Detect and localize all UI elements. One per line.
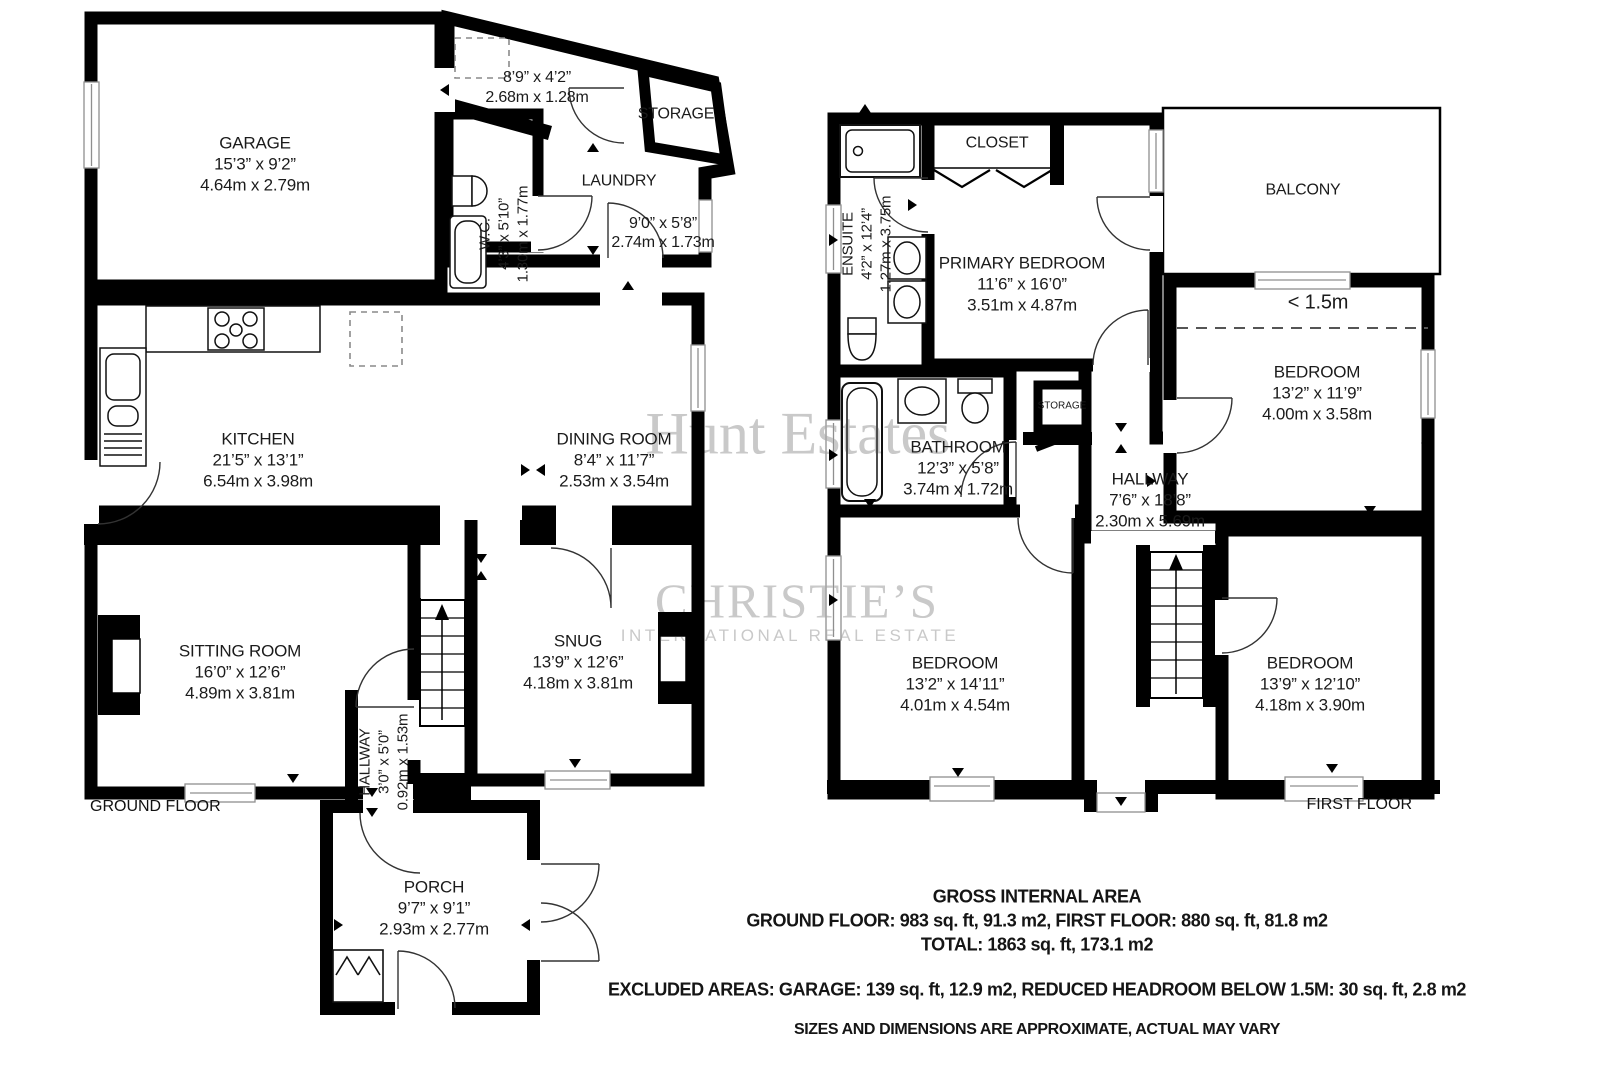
label-laundry-dims: 9’0” x 5’8”2.74m x 1.73m [611,214,714,252]
label-laundry-nook-dims: 8’9” x 4’2”2.68m x 1.28m [485,68,588,108]
label-snug: SNUG13’9” x 12’6”4.18m x 3.81m [523,631,633,694]
label-porch: PORCH9’7” x 9’1”2.93m x 2.77m [379,877,489,940]
label-kitchen: KITCHEN21’5” x 13’1”6.54m x 3.98m [203,429,313,492]
footer-disclaimer: SIZES AND DIMENSIONS ARE APPROXIMATE, AC… [794,1021,1280,1039]
label-storage-ground: STORAGE [638,104,715,125]
label-reduced-headroom: < 1.5m [1288,293,1349,314]
label-primary-bedroom: PRIMARY BEDROOM11’6” x 16’0”3.51m x 4.87… [939,253,1105,316]
footer-areas: GROUND FLOOR: 983 sq. ft, 91.3 m2, FIRST… [746,911,1327,932]
label-closet: CLOSET [966,133,1029,154]
footer-total: TOTAL: 1863 sq. ft, 173.1 m2 [921,935,1153,956]
watermark-christies-sub: INTERNATIONAL REAL ESTATE [621,626,959,646]
stairs-ground-icon [420,600,465,726]
label-hallway-ground: HALLWAY3’0” x 5’0”0.92m x 1.53m [356,714,413,811]
label-garage: GARAGE15’3” x 9’2”4.64m x 2.79m [200,133,310,196]
label-ensuite: ENSUITE4’2” x 12’4”1.27m x 3.75m [839,196,896,293]
stairs-first-icon [1150,552,1203,698]
label-bedroom-bottom-right: BEDROOM13’9” x 12’10”4.18m x 3.90m [1255,653,1365,716]
label-laundry: LAUNDRY [582,171,657,192]
footer-title: GROSS INTERNAL AREA [933,887,1141,908]
toilet-icon [958,379,992,393]
label-balcony: BALCONY [1265,180,1340,201]
watermark-christies: CHRISTIE’S [655,573,939,630]
toilet-icon [848,318,876,334]
ground-floor-plan [84,18,728,1016]
toilet-icon [452,176,472,206]
watermark-hunt-estates: Hunt Estates [646,400,951,469]
label-storage-first: STORAGE [1038,401,1087,412]
label-bedroom-bottom-left: BEDROOM13’2” x 14’11”4.01m x 4.54m [900,653,1010,716]
ground-floor-label: GROUND FLOOR [90,798,221,816]
label-sitting: SITTING ROOM16’0” x 12’6”4.89m x 3.81m [179,641,301,704]
footer-excluded: EXCLUDED AREAS: GARAGE: 139 sq. ft, 12.9… [608,980,1466,1001]
label-bedroom-top-right: BEDROOM13’2” x 11’9”4.00m x 3.58m [1262,362,1372,425]
porch-closet-icon [333,950,383,1002]
floorplan-page: Hunt Estates CHRISTIE’S INTERNATIONAL RE… [0,0,1600,1066]
label-wc: W.C.4’3” x 5’10”1.30m x 1.77m [476,186,533,283]
label-hallway-first: HALLWAY7’6” x 18’8”2.30m x 5.69m [1095,469,1205,532]
first-floor-label: FIRST FLOOR [1307,796,1413,814]
